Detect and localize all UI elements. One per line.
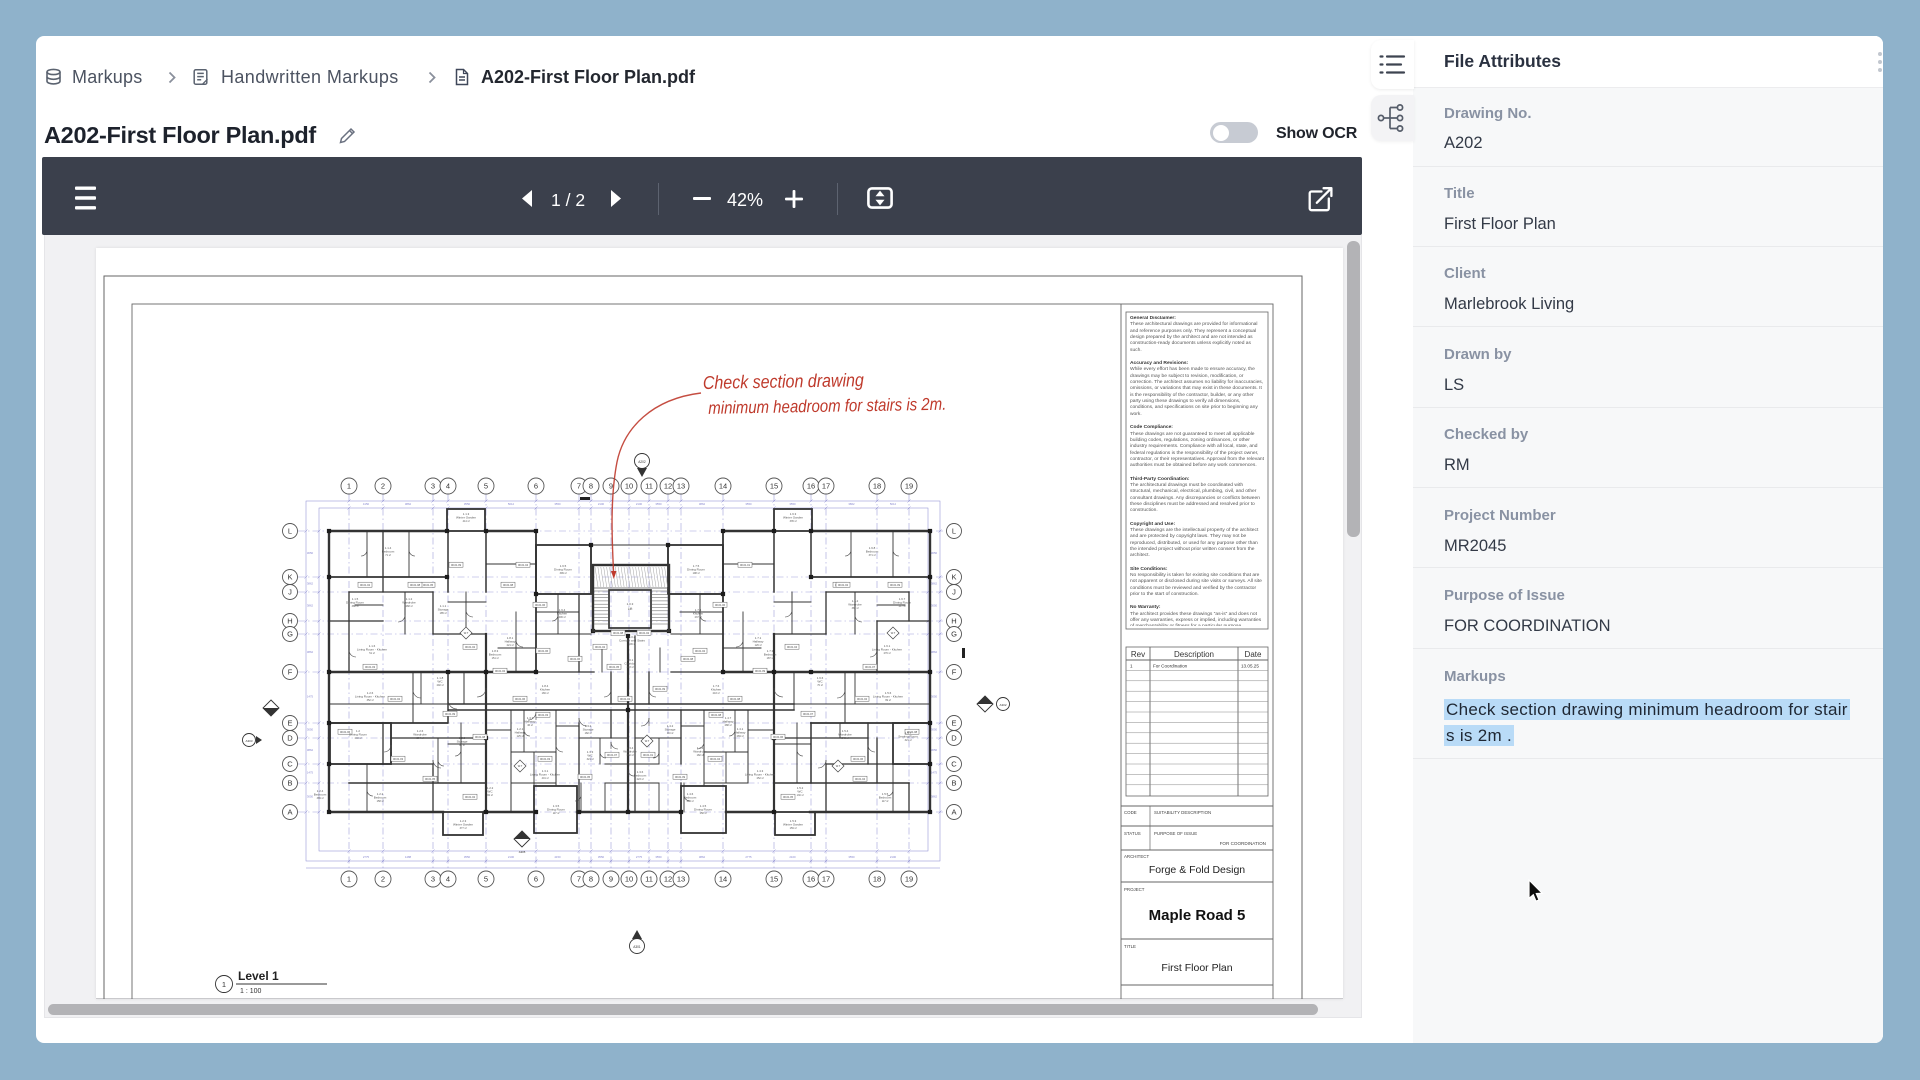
svg-text:00.01.01: 00.01.01 [740,563,751,567]
svg-text:3862: 3862 [699,502,706,506]
svg-text:00.01.02: 00.01.02 [390,697,401,701]
svg-text:Storage: Storage [457,739,468,743]
svg-text:399 sf: 399 sf [560,572,567,575]
svg-text:335 sf: 335 sf [790,520,797,523]
svg-text:A202: A202 [638,460,646,464]
svg-text:00.01.02: 00.01.02 [465,795,476,799]
svg-text:00.01.05: 00.01.05 [425,777,436,781]
svg-text:WC: WC [587,753,593,757]
svg-text:2100: 2100 [508,855,515,859]
svg-text:51 sf: 51 sf [369,652,375,655]
svg-text:00.01.04: 00.01.04 [855,777,866,781]
svg-text:Corridor and Stairs: Corridor and Stairs [619,638,645,642]
svg-text:G: G [287,630,293,639]
svg-text:3050: 3050 [931,695,938,699]
svg-text:W.T: W.T [891,631,896,635]
svg-text:W.T: W.T [645,739,650,743]
svg-text:276 sf: 276 sf [884,652,891,655]
svg-text:00.01.08: 00.01.08 [683,657,694,661]
svg-text:125 sf: 125 sf [517,735,524,738]
svg-text:99 sf: 99 sf [885,699,891,702]
svg-text:3862: 3862 [931,650,938,654]
svg-text:Dining Room: Dining Room [694,807,712,811]
svg-text:00.01.08: 00.01.08 [503,583,514,587]
svg-text:00.01.07: 00.01.07 [607,753,618,757]
svg-text:00.01.08: 00.01.08 [613,631,624,635]
svg-text:D: D [287,734,293,743]
svg-text:E: E [287,719,292,728]
svg-text:185 sf: 185 sf [440,612,447,615]
svg-text:00.01.01: 00.01.01 [643,753,654,757]
svg-text:17: 17 [822,875,830,884]
svg-text:Level 1: Level 1 [238,969,279,983]
svg-text:10: 10 [625,875,633,884]
svg-text:3550: 3550 [789,502,796,506]
svg-text:Seating Room: Seating Room [898,734,918,738]
svg-text:16: 16 [807,875,815,884]
svg-text:1: 1 [347,482,351,491]
svg-text:Hallway: Hallway [723,719,734,723]
svg-text:166 sf: 166 sf [542,692,549,695]
svg-text:Wardrobe: Wardrobe [402,600,416,604]
svg-text:Bedroom: Bedroom [374,795,387,799]
svg-text:288 sf: 288 sf [725,724,732,727]
svg-text:Winter Garden: Winter Garden [783,822,803,826]
svg-text:81 sf: 81 sf [459,744,465,747]
svg-text:Hallway: Hallway [505,639,516,643]
svg-text:STATUS: STATUS [1124,831,1141,836]
svg-text:294 sf: 294 sf [417,737,424,740]
svg-text:K: K [287,573,292,582]
svg-text:00.01.09: 00.01.09 [755,669,766,673]
svg-text:243 sf: 243 sf [713,692,720,695]
svg-text:Wardrobe: Wardrobe [623,749,637,753]
svg-text:D: D [951,734,957,743]
svg-text:00.01.08: 00.01.08 [410,583,421,587]
svg-text:3862: 3862 [931,795,938,799]
svg-text:237 sf: 237 sf [695,616,702,619]
svg-text:Winter Garden: Winter Garden [783,515,803,519]
svg-text:00.01.02: 00.01.02 [857,697,868,701]
svg-text:1: 1 [347,875,351,884]
svg-text:Bedroom: Bedroom [866,549,879,553]
svg-text:1475: 1475 [307,695,314,699]
svg-text:5012: 5012 [890,502,897,506]
svg-text:234 sf: 234 sf [687,800,694,803]
svg-text:C: C [951,760,957,769]
svg-text:Dining Room: Dining Room [687,567,705,571]
svg-text:12: 12 [664,875,672,884]
svg-text:159 sf: 159 sf [790,827,797,830]
svg-text:4: 4 [446,482,450,491]
svg-text:Kitchen: Kitchen [557,611,568,615]
svg-text:3862: 3862 [307,604,314,608]
svg-text:3: 3 [431,875,435,884]
svg-text:00.01.09: 00.01.09 [890,583,901,587]
svg-text:3550: 3550 [655,855,662,859]
svg-text:A: A [951,808,956,817]
svg-text:14: 14 [719,482,727,491]
svg-text:3050: 3050 [931,604,938,608]
svg-text:19: 19 [905,875,913,884]
svg-text:Storage: Storage [665,727,676,731]
svg-text:00.01.05: 00.01.05 [423,583,434,587]
svg-text:12: 12 [664,482,672,491]
svg-text:1488: 1488 [405,855,412,859]
svg-text:Living Room - Kitchen: Living Room - Kitchen [530,772,561,776]
svg-text:Bedroom: Bedroom [382,549,395,553]
svg-text:Bedroom: Bedroom [684,795,697,799]
svg-text:292 sf: 292 sf [437,684,444,687]
svg-text:Bedroom: Bedroom [489,652,502,656]
svg-text:Dining Room: Dining Room [554,567,572,571]
svg-text:240 sf: 240 sf [355,737,362,740]
svg-text:1: 1 [1130,664,1133,669]
svg-text:Hallway: Hallway [515,730,526,734]
svg-text:L: L [288,527,292,536]
svg-text:W.T: W.T [836,764,841,768]
svg-text:00.01.06: 00.01.06 [853,757,864,761]
svg-text:260 sf: 260 sf [627,754,634,757]
svg-text:Living Room - Kitchen: Living Room - Kitchen [355,694,386,698]
svg-text:217 sf: 217 sf [899,605,906,608]
svg-text:G: G [951,630,957,639]
svg-text:3050: 3050 [931,551,938,555]
svg-text:00.01.02: 00.01.02 [465,645,476,649]
svg-text:382 sf: 382 sf [852,607,859,610]
svg-text:H: H [287,617,292,626]
svg-text:3862: 3862 [931,582,938,586]
svg-text:223 sf: 223 sf [637,778,644,781]
svg-text:1475: 1475 [307,771,314,775]
svg-text:1475: 1475 [931,771,938,775]
svg-text:151 sf: 151 sf [492,657,499,660]
svg-text:Bedroom: Bedroom [879,795,892,799]
svg-text:1.0.3: 1.0.3 [627,602,634,606]
svg-text:A305: A305 [519,850,526,854]
svg-text:110 sf: 110 sf [667,732,674,735]
svg-text:7: 7 [577,875,581,884]
svg-text:C: C [287,760,293,769]
svg-text:4150: 4150 [554,855,561,859]
svg-text:Living Room - Kitchen: Living Room - Kitchen [357,647,388,651]
svg-text:H: H [951,617,956,626]
svg-text:00.01.02: 00.01.02 [620,697,631,701]
svg-text:13: 13 [677,482,685,491]
svg-text:82 sf: 82 sf [487,794,493,797]
svg-text:2775: 2775 [636,855,643,859]
svg-text:J: J [288,588,292,597]
svg-text:1: 1 [222,980,226,989]
svg-text:15: 15 [770,875,778,884]
svg-text:70 sf: 70 sf [817,684,823,687]
svg-text:187 sf: 187 sf [767,657,774,660]
svg-text:00.01.02: 00.01.02 [838,583,849,587]
svg-text:401 sf: 401 sf [542,777,549,780]
svg-text:3862: 3862 [307,582,314,586]
svg-text:158 sf: 158 sf [377,800,384,803]
svg-text:F: F [952,668,957,677]
svg-text:Wardrobe: Wardrobe [413,732,427,736]
svg-text:A: A [287,808,292,817]
svg-text:9: 9 [609,482,613,491]
svg-text:Winter Garden: Winter Garden [456,515,476,519]
svg-text:00.01.02: 00.01.02 [595,645,606,649]
svg-text:Living Room - Kitchen: Living Room - Kitchen [872,647,903,651]
svg-text:J: J [952,588,956,597]
svg-text:117 sf: 117 sf [553,812,560,815]
svg-text:182 sf: 182 sf [697,754,704,757]
svg-text:Rev: Rev [1131,650,1145,659]
svg-text:Dining Room: Dining Room [346,600,364,604]
svg-text:182 sf: 182 sf [585,732,592,735]
svg-text:Hallway: Hallway [735,730,746,734]
svg-text:3550: 3550 [464,855,471,859]
svg-text:3862: 3862 [307,748,314,752]
svg-text:352 sf: 352 sf [367,699,374,702]
svg-text:3050: 3050 [931,728,938,732]
svg-text:W.T: W.T [518,764,523,768]
svg-text:00.01.06: 00.01.06 [773,735,784,739]
svg-text:13: 13 [677,875,685,884]
svg-text:6: 6 [534,482,538,491]
svg-text:14: 14 [719,875,727,884]
svg-text:2: 2 [381,482,385,491]
svg-text:414 sf: 414 sf [463,520,470,523]
svg-text:00.01.07: 00.01.07 [803,712,814,716]
svg-text:Winter Garden: Winter Garden [453,822,473,826]
svg-text:Lift: Lift [628,607,633,611]
svg-text:00.01.05: 00.01.05 [783,795,794,799]
svg-text:3862: 3862 [405,502,412,506]
svg-text:3: 3 [431,482,435,491]
svg-text:Wardrobe: Wardrobe [848,602,862,606]
svg-text:PROJECT: PROJECT [1124,887,1145,892]
svg-text:K: K [951,573,956,582]
svg-text:Storage: Storage [583,727,594,731]
svg-text:126 sf: 126 sf [755,644,762,647]
svg-text:TITLE: TITLE [1124,944,1136,949]
svg-text:00.01.02: 00.01.02 [360,583,371,587]
svg-text:00.01.02: 00.01.02 [639,631,650,635]
svg-text:18: 18 [873,482,881,491]
svg-text:WC: WC [797,789,803,793]
svg-text:389 sf: 389 sf [317,797,324,800]
svg-text:A302: A302 [999,703,1006,707]
svg-text:Maple Road 5: Maple Road 5 [1149,907,1246,924]
svg-text:00.01.06: 00.01.06 [515,697,526,701]
svg-text:00.01.08: 00.01.08 [475,735,486,739]
svg-text:Kitchen: Kitchen [540,687,551,691]
svg-text:Storage: Storage [438,607,449,611]
svg-text:Bedroom: Bedroom [764,652,777,656]
svg-text:00.01.02: 00.01.02 [695,649,706,653]
svg-text:00.01.06: 00.01.06 [535,603,546,607]
svg-text:321 sf: 321 sf [905,739,912,742]
svg-text:E: E [951,719,956,728]
svg-text:00.01.05: 00.01.05 [609,665,620,669]
svg-text:221 sf: 221 sf [507,644,514,647]
svg-text:Hallway: Hallway [525,719,536,723]
svg-text:Date: Date [1245,650,1262,659]
svg-text:00.01.07: 00.01.07 [865,665,876,669]
svg-text:7: 7 [577,482,581,491]
svg-text:Corridor: Corridor [624,661,635,665]
svg-text:371 sf: 371 sf [869,554,876,557]
svg-text:B: B [287,779,292,788]
svg-text:00.01.04: 00.01.04 [710,757,721,761]
svg-text:00.01.03: 00.01.03 [540,757,551,761]
svg-text:3550: 3550 [464,502,471,506]
svg-text:3050: 3050 [307,728,314,732]
svg-text:L: L [952,527,956,536]
svg-text:Wardrobe: Wardrobe [838,732,852,736]
svg-text:Kitchen: Kitchen [711,687,722,691]
svg-text:W.T: W.T [464,631,469,635]
svg-text:2: 2 [381,875,385,884]
svg-text:Dining Room: Dining Room [547,807,565,811]
svg-text:130 sf: 130 sf [797,794,804,797]
svg-text:Kitchen: Kitchen [693,611,704,615]
svg-text:106 sf: 106 sf [629,643,636,646]
svg-text:WC: WC [487,789,493,793]
svg-text:10: 10 [625,482,633,491]
svg-text:17: 17 [822,482,830,491]
svg-text:406 sf: 406 sf [559,616,566,619]
svg-text:ARCHITECT: ARCHITECT [1124,854,1149,859]
svg-text:PURPOSE OF ISSUE: PURPOSE OF ISSUE [1154,831,1197,836]
svg-text:2100: 2100 [636,502,643,506]
svg-text:268 sf: 268 sf [406,605,413,608]
svg-text:377 sf: 377 sf [460,827,467,830]
svg-text:Dining Room: Dining Room [893,600,911,604]
svg-text:00.01.03: 00.01.03 [538,713,549,717]
svg-text:Bedroom: Bedroom [314,792,327,796]
svg-text:00.01.06: 00.01.06 [538,649,549,653]
svg-text:13.05.25: 13.05.25 [1241,664,1259,669]
svg-text:5: 5 [484,482,488,491]
svg-text:00.01.09: 00.01.09 [655,687,666,691]
svg-text:Forge & Fold Design: Forge & Fold Design [1149,864,1245,876]
svg-text:18: 18 [873,875,881,884]
svg-text:F: F [288,668,293,677]
svg-text:First Floor Plan: First Floor Plan [1161,962,1232,974]
svg-text:117 sf: 117 sf [882,800,889,803]
svg-text:FOR COORDINATION: FOR COORDINATION [1220,841,1266,846]
svg-text:3862: 3862 [699,855,706,859]
svg-text:2100: 2100 [789,855,796,859]
svg-text:3550: 3550 [554,502,561,506]
svg-text:00.01.09: 00.01.09 [445,712,456,716]
svg-text:00.01.08: 00.01.08 [730,697,741,701]
svg-text:00.01.03: 00.01.03 [393,757,404,761]
svg-text:2775: 2775 [363,855,370,859]
svg-text:5012: 5012 [508,502,515,506]
svg-text:5: 5 [484,875,488,884]
svg-text:SUITABILITY DESCRIPTION: SUITABILITY DESCRIPTION [1154,810,1211,815]
svg-text:3862: 3862 [848,502,855,506]
svg-text:198 sf: 198 sf [693,572,700,575]
svg-text:A301: A301 [633,945,641,949]
svg-text:00.01.09: 00.01.09 [675,775,686,779]
svg-text:3050: 3050 [307,551,314,555]
svg-text:3550: 3550 [848,855,855,859]
svg-text:3050: 3050 [931,748,938,752]
svg-text:00.01.09: 00.01.09 [451,563,462,567]
svg-text:Wardrobe: Wardrobe [693,749,707,753]
svg-text:19: 19 [905,482,913,491]
svg-text:245 sf: 245 sf [842,737,849,740]
svg-text:3862: 3862 [307,650,314,654]
svg-text:Check section drawing: Check section drawing [703,369,865,393]
svg-text:8: 8 [589,875,593,884]
svg-text:Bedroom: Bedroom [634,773,647,777]
svg-text:11: 11 [645,875,653,884]
svg-text:00.01.05: 00.01.05 [580,775,591,779]
svg-text:CODE: CODE [1124,810,1137,815]
svg-text:6: 6 [534,875,538,884]
svg-text:00.01.04: 00.01.04 [787,645,798,649]
svg-text:For Coordination: For Coordination [1153,664,1188,669]
svg-text:9: 9 [609,875,613,884]
svg-text:00.01.06: 00.01.06 [570,657,581,661]
svg-text:388 sf: 388 sf [352,605,359,608]
svg-text:4: 4 [446,875,450,884]
svg-text:3050: 3050 [307,795,314,799]
svg-text:252 sf: 252 sf [757,777,764,780]
svg-text:3550: 3550 [598,855,605,859]
svg-text:00.01.06: 00.01.06 [715,603,726,607]
svg-text:2100: 2100 [890,855,897,859]
svg-text:A303: A303 [245,739,252,743]
svg-text:00.01.02: 00.01.02 [495,669,506,673]
svg-text:00.01.03: 00.01.03 [365,665,376,669]
svg-text:WC: WC [437,679,443,683]
svg-text:Dining Room: Dining Room [349,732,367,736]
svg-text:158 sf: 158 sf [700,812,707,815]
svg-text:Living Room - Kitchen: Living Room - Kitchen [745,772,776,776]
svg-text:269 sf: 269 sf [737,735,744,738]
svg-text:418 sf: 418 sf [627,666,634,669]
svg-text:46 sf: 46 sf [527,724,533,727]
svg-text:2775: 2775 [745,855,752,859]
svg-text:2100: 2100 [598,502,605,506]
svg-text:Living Room - Kitchen: Living Room - Kitchen [873,694,904,698]
svg-text:321 sf: 321 sf [587,758,594,761]
svg-text:16: 16 [807,482,815,491]
svg-text:11: 11 [645,482,653,491]
svg-text:71 sf: 71 sf [385,554,391,557]
svg-text:3550: 3550 [745,502,752,506]
svg-text:Description: Description [1174,650,1214,659]
svg-text:00.01.04: 00.01.04 [518,563,529,567]
svg-text:15: 15 [770,482,778,491]
svg-text:1 : 100: 1 : 100 [240,988,262,995]
svg-text:00.01.08: 00.01.08 [711,713,722,717]
svg-text:3550: 3550 [655,502,662,506]
svg-text:WC: WC [817,679,823,683]
svg-text:Hallway: Hallway [753,639,764,643]
svg-text:4150: 4150 [363,502,370,506]
svg-text:8: 8 [589,482,593,491]
svg-text:B: B [951,779,956,788]
svg-text:minimum headroom for stairs is: minimum headroom for stairs is 2m. [708,394,946,418]
